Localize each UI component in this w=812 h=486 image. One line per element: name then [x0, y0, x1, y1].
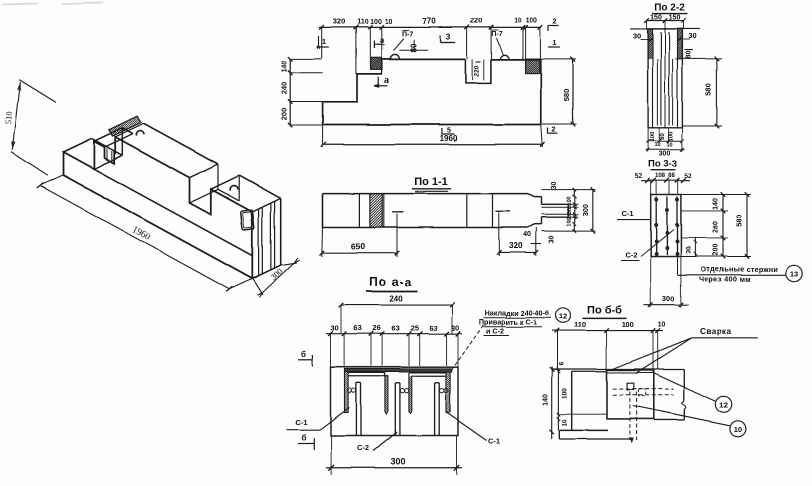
svg-text:Приварить к С-1: Приварить к С-1	[479, 318, 537, 327]
svg-text:580: 580	[704, 84, 713, 97]
svg-text:Через 400 мм: Через 400 мм	[699, 275, 751, 284]
svg-text:80: 80	[660, 133, 666, 140]
svg-text:30: 30	[330, 324, 338, 333]
svg-text:10: 10	[734, 424, 742, 433]
svg-text:26: 26	[372, 324, 380, 333]
svg-text:С-1: С-1	[621, 209, 633, 218]
svg-text:300: 300	[662, 294, 675, 303]
svg-text:140: 140	[282, 61, 289, 73]
svg-text:110: 110	[574, 320, 586, 329]
svg-text:10: 10	[562, 419, 569, 427]
svg-text:С-2: С-2	[625, 251, 637, 260]
svg-text:580: 580	[562, 89, 571, 102]
svg-text:12: 12	[720, 400, 728, 409]
svg-text:580: 580	[735, 215, 744, 228]
svg-text:С-1: С-1	[295, 418, 307, 427]
svg-text:По а-а: По а-а	[370, 275, 413, 289]
svg-text:100: 100	[622, 320, 635, 329]
svg-text:30: 30	[567, 208, 573, 214]
svg-text:30: 30	[632, 32, 640, 41]
svg-text:30: 30	[686, 246, 693, 254]
svg-text:10: 10	[567, 203, 573, 209]
svg-text:a: a	[384, 75, 389, 86]
svg-text:240: 240	[389, 295, 403, 304]
svg-text:10: 10	[658, 322, 666, 329]
svg-text:С-2: С-2	[357, 444, 369, 453]
svg-text:Отдельные стержни: Отдельные стержни	[701, 265, 778, 274]
svg-text:5: 5	[447, 126, 451, 135]
svg-text:2: 2	[553, 17, 557, 26]
svg-text:1960: 1960	[440, 134, 458, 143]
svg-text:280: 280	[713, 221, 720, 233]
svg-text:б: б	[301, 350, 306, 359]
svg-text:30: 30	[549, 236, 556, 244]
svg-text:100: 100	[370, 19, 382, 26]
svg-text:12: 12	[559, 311, 567, 320]
svg-text:300: 300	[659, 151, 671, 158]
svg-text:63: 63	[429, 324, 437, 333]
svg-text:140: 140	[543, 394, 550, 406]
svg-text:1: 1	[553, 39, 557, 48]
svg-text:88: 88	[668, 174, 675, 180]
svg-text:10: 10	[654, 143, 660, 149]
svg-text:10: 10	[385, 19, 393, 26]
svg-text:320: 320	[509, 241, 523, 251]
svg-text:10: 10	[666, 143, 672, 149]
svg-text:110: 110	[357, 19, 368, 26]
svg-text:40: 40	[524, 232, 532, 239]
svg-text:100: 100	[526, 18, 538, 25]
svg-text:150: 150	[650, 15, 662, 22]
svg-text:300: 300	[390, 457, 405, 467]
svg-text:Накладки 240-40-6: Накладки 240-40-6	[485, 309, 550, 318]
svg-text:52: 52	[684, 173, 692, 180]
svg-text:80: 80	[684, 51, 693, 59]
svg-text:a: a	[379, 35, 384, 45]
svg-text:200: 200	[280, 108, 289, 121]
svg-text:240: 240	[280, 82, 289, 95]
svg-text:По 2-2: По 2-2	[654, 3, 685, 14]
svg-text:100: 100	[567, 217, 573, 226]
svg-text:и С-2: и С-2	[486, 327, 504, 336]
svg-text:770: 770	[422, 17, 436, 26]
svg-text:10: 10	[514, 18, 522, 25]
svg-text:30: 30	[551, 182, 558, 190]
svg-text:Сварка: Сварка	[699, 327, 731, 336]
svg-text:По б-б: По б-б	[587, 305, 622, 317]
svg-text:2: 2	[551, 125, 555, 134]
svg-text:63: 63	[391, 324, 399, 333]
svg-text:220: 220	[470, 16, 483, 25]
svg-text:320: 320	[333, 17, 346, 26]
svg-text:3: 3	[446, 32, 451, 42]
svg-text:220: 220	[474, 65, 481, 76]
svg-text:По 1-1: По 1-1	[414, 176, 448, 188]
svg-text:б: б	[302, 434, 307, 443]
svg-text:6: 6	[559, 361, 566, 365]
svg-text:13: 13	[790, 270, 798, 279]
svg-text:650: 650	[351, 242, 365, 252]
svg-text:100: 100	[650, 131, 656, 142]
svg-text:П-7: П-7	[492, 31, 503, 38]
svg-text:510: 510	[3, 111, 14, 125]
svg-text:300: 300	[583, 204, 590, 216]
svg-text:С-1: С-1	[488, 437, 500, 446]
svg-text:150: 150	[669, 15, 681, 22]
svg-text:П-7: П-7	[402, 32, 413, 39]
svg-text:По 3-3: По 3-3	[648, 159, 677, 170]
svg-text:1: 1	[322, 37, 326, 46]
svg-text:200: 200	[713, 244, 720, 256]
svg-text:108: 108	[655, 174, 666, 180]
svg-text:25: 25	[410, 324, 418, 333]
svg-text:52: 52	[635, 173, 643, 180]
svg-text:63: 63	[353, 324, 361, 333]
svg-text:140: 140	[713, 198, 720, 210]
svg-text:100: 100	[562, 388, 569, 399]
